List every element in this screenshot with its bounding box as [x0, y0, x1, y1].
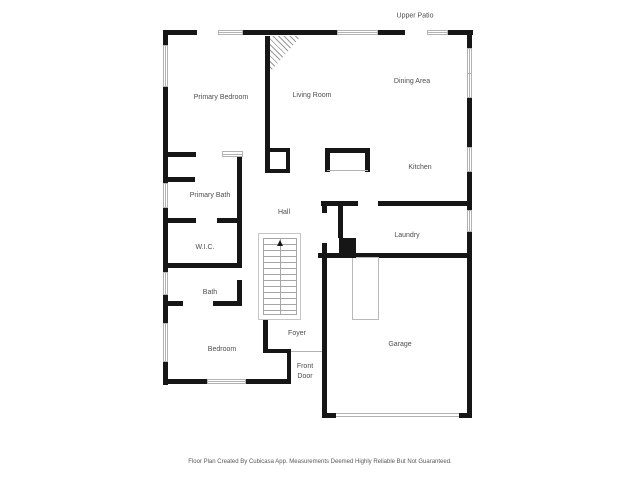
window-glyph — [163, 183, 168, 208]
wall-segment — [266, 169, 290, 173]
wall-segment — [325, 148, 370, 153]
wall-segment — [338, 206, 343, 238]
room-label-primary-bath: Primary Bath — [190, 191, 230, 201]
room-label-laundry: Laundry — [394, 231, 419, 241]
room-label-bedroom: Bedroom — [208, 345, 236, 355]
window-glyph — [163, 323, 168, 362]
room-label-foyer: Foyer — [288, 329, 306, 339]
wall-segment — [467, 30, 472, 48]
window-glyph — [467, 147, 472, 172]
wall-segment — [163, 295, 168, 323]
wall-segment — [166, 152, 196, 157]
chimney-block — [339, 238, 356, 258]
stairs-up-arrow-icon — [277, 240, 283, 246]
window-pane-line — [219, 32, 242, 33]
window-glyph — [222, 151, 243, 157]
room-label-garage: Garage — [388, 340, 411, 350]
window-pane-line — [428, 32, 447, 33]
furnace-appliance — [352, 257, 379, 320]
wall-segment — [265, 36, 270, 153]
window-glyph — [427, 30, 448, 35]
wall-segment — [166, 263, 242, 268]
wall-segment — [459, 413, 472, 418]
wall-segment — [166, 218, 196, 223]
room-label-hall: Hall — [278, 208, 290, 218]
window-pane-line — [469, 211, 470, 231]
wall-segment — [467, 232, 472, 418]
window-glyph — [163, 272, 168, 295]
wall-segment — [243, 30, 337, 35]
wall-segment — [467, 172, 472, 210]
window-glyph — [467, 48, 472, 98]
window-split-line — [468, 73, 471, 74]
window-pane-line — [165, 184, 166, 207]
staircase — [263, 238, 297, 315]
wall-segment — [217, 218, 240, 223]
wall-segment — [166, 177, 195, 182]
wall-segment — [163, 30, 168, 45]
wall-segment — [163, 30, 197, 35]
wall-segment — [365, 148, 370, 172]
wall-segment — [213, 301, 241, 306]
room-label-wic: W.I.C. — [195, 243, 214, 253]
wall-segment — [287, 351, 291, 384]
outdoor-label-upper-patio: Upper Patio — [397, 13, 434, 20]
window-glyph — [337, 30, 378, 35]
window-pane-line — [338, 32, 377, 33]
wall-segment — [163, 87, 168, 183]
window-glyph — [467, 210, 472, 232]
floor-plan: Floor Plan Created By Cubicasa App. Meas… — [0, 0, 640, 480]
window-glyph — [218, 30, 243, 35]
window-pane-line — [165, 273, 166, 294]
window-pane-line — [469, 148, 470, 171]
room-label-kitchen: Kitchen — [408, 163, 431, 173]
footer-disclaimer: Floor Plan Created By Cubicasa App. Meas… — [0, 459, 640, 465]
thin-line — [336, 413, 459, 414]
window-pane-line — [165, 46, 166, 86]
room-label-primary-bedroom: Primary Bedroom — [194, 93, 248, 103]
wall-segment — [246, 379, 291, 384]
staircase-center-line — [280, 239, 281, 314]
thin-line — [336, 416, 459, 417]
wall-segment — [163, 379, 207, 384]
wall-segment — [378, 30, 405, 35]
room-label-bath: Bath — [203, 288, 217, 298]
thin-line — [327, 170, 368, 171]
corner-fireplace-icon — [270, 36, 301, 72]
wall-segment — [467, 98, 472, 147]
window-glyph — [207, 379, 246, 384]
window-glyph — [163, 45, 168, 87]
thin-line — [291, 351, 322, 352]
wall-segment — [164, 301, 183, 306]
wall-segment — [322, 243, 327, 418]
window-pane-line — [208, 381, 245, 382]
wall-segment — [378, 201, 467, 206]
room-label-dining-area: Dining Area — [394, 77, 430, 87]
room-label-front-door: Front Door — [297, 362, 313, 382]
wall-segment — [237, 152, 242, 265]
wall-segment — [325, 148, 330, 172]
window-pane-line — [223, 154, 242, 155]
room-label-living-room: Living Room — [293, 91, 332, 101]
window-pane-line — [165, 324, 166, 361]
